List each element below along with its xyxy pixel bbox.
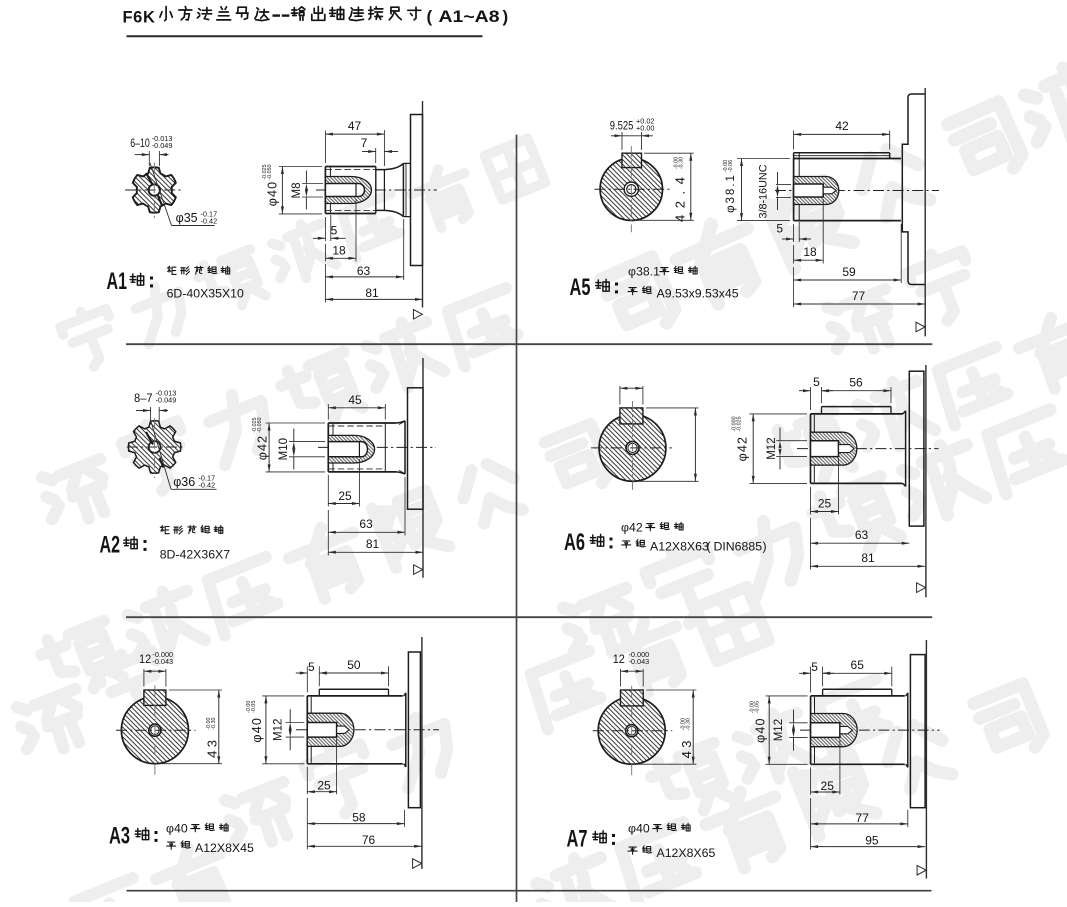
svg-text:3/8-16UNC: 3/8-16UNC bbox=[758, 164, 770, 218]
svg-text:-0.06: -0.06 bbox=[728, 160, 734, 172]
svg-text:-0.049: -0.049 bbox=[156, 396, 177, 405]
svg-text:18: 18 bbox=[332, 244, 346, 258]
svg-text:DIN6885: DIN6885 bbox=[714, 540, 763, 554]
svg-text:A5: A5 bbox=[570, 274, 591, 301]
svg-text:81: 81 bbox=[861, 551, 875, 565]
svg-text:6–10: 6–10 bbox=[130, 136, 150, 150]
svg-text:φ42: φ42 bbox=[736, 436, 750, 462]
svg-text:φ42: φ42 bbox=[256, 435, 270, 461]
svg-text:65: 65 bbox=[851, 658, 865, 672]
svg-text:M12: M12 bbox=[273, 719, 285, 741]
svg-text:(: ( bbox=[427, 7, 433, 26]
svg-text:φ38.1: φ38.1 bbox=[725, 173, 737, 213]
svg-text:A12X8X63: A12X8X63 bbox=[650, 540, 709, 554]
svg-text:25: 25 bbox=[338, 489, 352, 503]
svg-text:M8: M8 bbox=[291, 183, 303, 199]
svg-text:43: 43 bbox=[679, 737, 694, 758]
svg-text:12: 12 bbox=[139, 652, 151, 666]
svg-text:77: 77 bbox=[852, 289, 866, 303]
svg-text:8D-42X36X7: 8D-42X36X7 bbox=[160, 547, 231, 561]
svg-text:φ36: φ36 bbox=[173, 475, 195, 489]
svg-text:76: 76 bbox=[362, 833, 376, 847]
svg-text:-0.050: -0.050 bbox=[257, 417, 263, 432]
svg-text:-0.30: -0.30 bbox=[686, 718, 692, 730]
svg-text:43: 43 bbox=[205, 736, 220, 757]
svg-text:5: 5 bbox=[813, 375, 820, 389]
svg-text:63: 63 bbox=[357, 264, 371, 278]
svg-text:): ) bbox=[763, 540, 767, 554]
svg-text:A6: A6 bbox=[564, 529, 585, 556]
svg-text:47: 47 bbox=[348, 119, 362, 133]
svg-text:58: 58 bbox=[352, 811, 366, 825]
svg-text:A9.53x9.53x45: A9.53x9.53x45 bbox=[657, 287, 739, 301]
svg-text:+0.00: +0.00 bbox=[636, 124, 654, 133]
svg-text:-0.049: -0.049 bbox=[152, 141, 173, 150]
svg-text:12: 12 bbox=[613, 652, 625, 666]
svg-text:φ40: φ40 bbox=[754, 717, 768, 743]
svg-text:-0.42: -0.42 bbox=[199, 481, 216, 490]
svg-text:M12: M12 bbox=[773, 719, 785, 741]
svg-text:-0.30: -0.30 bbox=[679, 157, 685, 169]
svg-text:F6K: F6K bbox=[123, 9, 156, 27]
svg-text:18: 18 bbox=[803, 245, 817, 259]
svg-text:5: 5 bbox=[308, 660, 315, 674]
svg-text:-0.05: -0.05 bbox=[251, 701, 257, 713]
svg-text:56: 56 bbox=[849, 376, 863, 390]
svg-text:25: 25 bbox=[317, 779, 331, 793]
svg-text:-0.043: -0.043 bbox=[152, 657, 173, 666]
svg-text:A12X8X65: A12X8X65 bbox=[657, 846, 716, 860]
svg-text:63: 63 bbox=[855, 528, 869, 542]
svg-text:φ40: φ40 bbox=[250, 717, 264, 743]
svg-text:5: 5 bbox=[331, 224, 338, 238]
svg-text:M10: M10 bbox=[278, 438, 290, 460]
svg-text:): ) bbox=[503, 7, 509, 26]
svg-text:φ40: φ40 bbox=[628, 822, 650, 836]
svg-text:95: 95 bbox=[865, 834, 879, 848]
svg-text:25: 25 bbox=[821, 779, 835, 793]
svg-text:-0.025: -0.025 bbox=[737, 416, 743, 431]
svg-text:5: 5 bbox=[776, 222, 783, 236]
svg-text:φ35: φ35 bbox=[176, 211, 198, 225]
svg-text:5: 5 bbox=[811, 660, 818, 674]
svg-text:42.4: 42.4 bbox=[672, 171, 687, 222]
svg-text:A2: A2 bbox=[100, 532, 121, 559]
svg-text:42: 42 bbox=[835, 119, 849, 133]
svg-text:7: 7 bbox=[361, 136, 368, 150]
svg-text:-0.043: -0.043 bbox=[629, 657, 650, 666]
svg-text:6D-40X35X10: 6D-40X35X10 bbox=[167, 286, 244, 300]
svg-text:A3: A3 bbox=[109, 823, 130, 850]
svg-text:A12X8X45: A12X8X45 bbox=[195, 841, 254, 855]
svg-text:77: 77 bbox=[856, 811, 870, 825]
svg-text:9.525: 9.525 bbox=[610, 119, 634, 133]
svg-text:A7: A7 bbox=[567, 826, 588, 853]
svg-text:φ38.1: φ38.1 bbox=[628, 265, 660, 279]
svg-text:-0.42: -0.42 bbox=[201, 217, 218, 226]
svg-text:A1~A8: A1~A8 bbox=[439, 8, 500, 26]
svg-text:-0.050: -0.050 bbox=[267, 164, 273, 179]
svg-text:8–7: 8–7 bbox=[134, 391, 153, 405]
svg-text:81: 81 bbox=[365, 286, 379, 300]
svg-text:25: 25 bbox=[818, 497, 832, 511]
svg-text:-0.05: -0.05 bbox=[755, 701, 761, 713]
svg-text:φ42: φ42 bbox=[621, 521, 643, 535]
svg-text:59: 59 bbox=[842, 265, 856, 279]
svg-text:45: 45 bbox=[348, 393, 362, 407]
svg-text:63: 63 bbox=[359, 517, 373, 531]
svg-text:M12: M12 bbox=[766, 437, 778, 459]
svg-text:-0.30: -0.30 bbox=[211, 718, 217, 730]
svg-text:50: 50 bbox=[347, 658, 361, 672]
svg-text:81: 81 bbox=[366, 537, 380, 551]
svg-text:A1: A1 bbox=[107, 268, 128, 295]
svg-text:φ40: φ40 bbox=[166, 822, 188, 836]
svg-text:φ40: φ40 bbox=[266, 181, 280, 207]
